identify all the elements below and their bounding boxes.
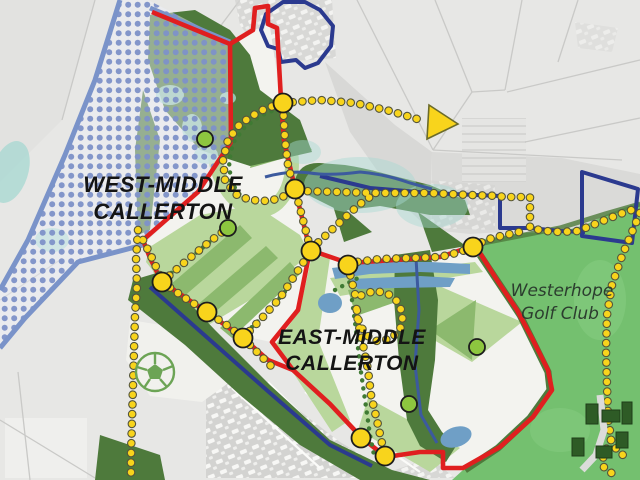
east-site-label-line2: CALLERTON (285, 352, 419, 375)
masterplan-map: WEST-MIDDLE CALLERTON EAST-MIDDLE CALLER… (0, 0, 640, 480)
junction-node (376, 447, 395, 466)
junction-node (274, 94, 293, 113)
junction-node (198, 303, 217, 322)
west-site-label-line2: CALLERTON (93, 199, 233, 224)
golf-club-label-line2: Golf Club (521, 304, 599, 324)
junction-node (286, 180, 305, 199)
west-site-label-line1: WEST-MIDDLE (83, 172, 243, 197)
junction-node (352, 429, 371, 448)
access-node (401, 396, 417, 412)
junction-node (339, 256, 358, 275)
access-node (469, 339, 485, 355)
map-canvas: WEST-MIDDLE CALLERTON EAST-MIDDLE CALLER… (0, 0, 640, 480)
golf-club-label-line1: Westerhope (511, 281, 614, 301)
junction-node (464, 238, 483, 257)
junction-node (302, 242, 321, 261)
access-node (197, 131, 213, 147)
junction-node (153, 273, 172, 292)
east-site-label-line1: EAST-MIDDLE (278, 326, 426, 349)
junction-node (234, 329, 253, 348)
